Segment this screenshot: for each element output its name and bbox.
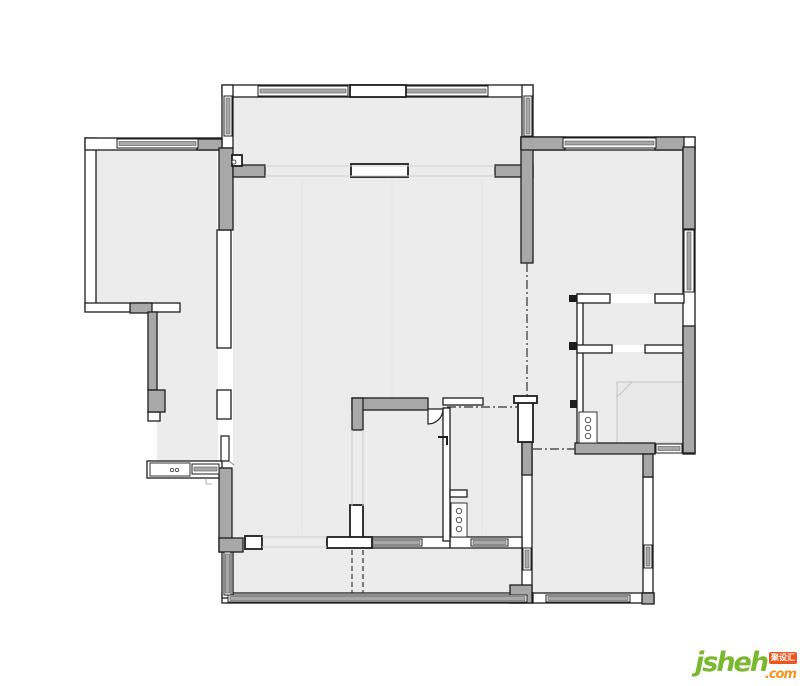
floor-plan-drawing (0, 0, 800, 686)
logo-tld: .com (765, 667, 796, 682)
floorplan-page: jsheh 聚设汇 .com (0, 0, 800, 686)
site-logo: jsheh 聚设汇 .com (695, 651, 797, 683)
logo-text: jsheh (695, 647, 767, 678)
logo-badge: 聚设汇 (769, 652, 797, 664)
